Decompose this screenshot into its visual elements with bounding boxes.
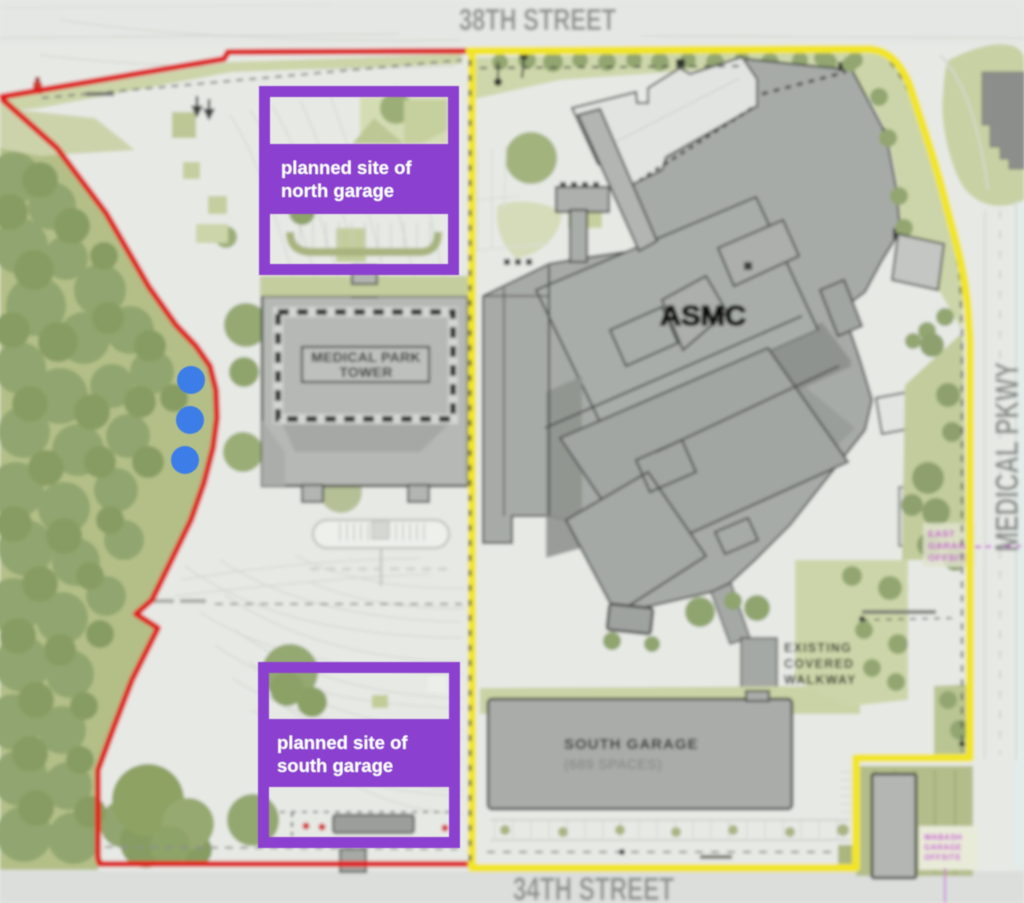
svg-text:GARAGE: GARAGE: [928, 541, 973, 552]
svg-text:planned site of: planned site of: [277, 732, 408, 753]
svg-text:SOUTH GARAGE: SOUTH GARAGE: [564, 736, 699, 753]
svg-text:OFFSITE: OFFSITE: [928, 553, 972, 564]
svg-text:south garage: south garage: [277, 755, 393, 776]
svg-text:WABASH: WABASH: [924, 833, 963, 842]
svg-text:planned site of: planned site of: [281, 157, 412, 178]
svg-text:EXISTING: EXISTING: [784, 641, 852, 655]
svg-text:TOWER: TOWER: [339, 364, 392, 380]
svg-text:WALKWAY: WALKWAY: [784, 673, 857, 687]
svg-text:(689 SPACES): (689 SPACES): [564, 756, 662, 772]
svg-text:34TH STREET: 34TH STREET: [513, 871, 674, 903]
svg-text:GARAGE: GARAGE: [924, 843, 962, 852]
svg-text:COVERED: COVERED: [784, 657, 854, 671]
svg-text:MEDICAL PKWY: MEDICAL PKWY: [989, 362, 1024, 552]
svg-text:ASMC: ASMC: [660, 300, 746, 331]
svg-text:EAST: EAST: [928, 529, 955, 540]
svg-text:north garage: north garage: [281, 180, 394, 201]
svg-text:OFFSITE: OFFSITE: [924, 853, 961, 862]
svg-text:38TH STREET: 38TH STREET: [459, 2, 616, 37]
svg-text:MEDICAL PARK: MEDICAL PARK: [311, 349, 421, 365]
